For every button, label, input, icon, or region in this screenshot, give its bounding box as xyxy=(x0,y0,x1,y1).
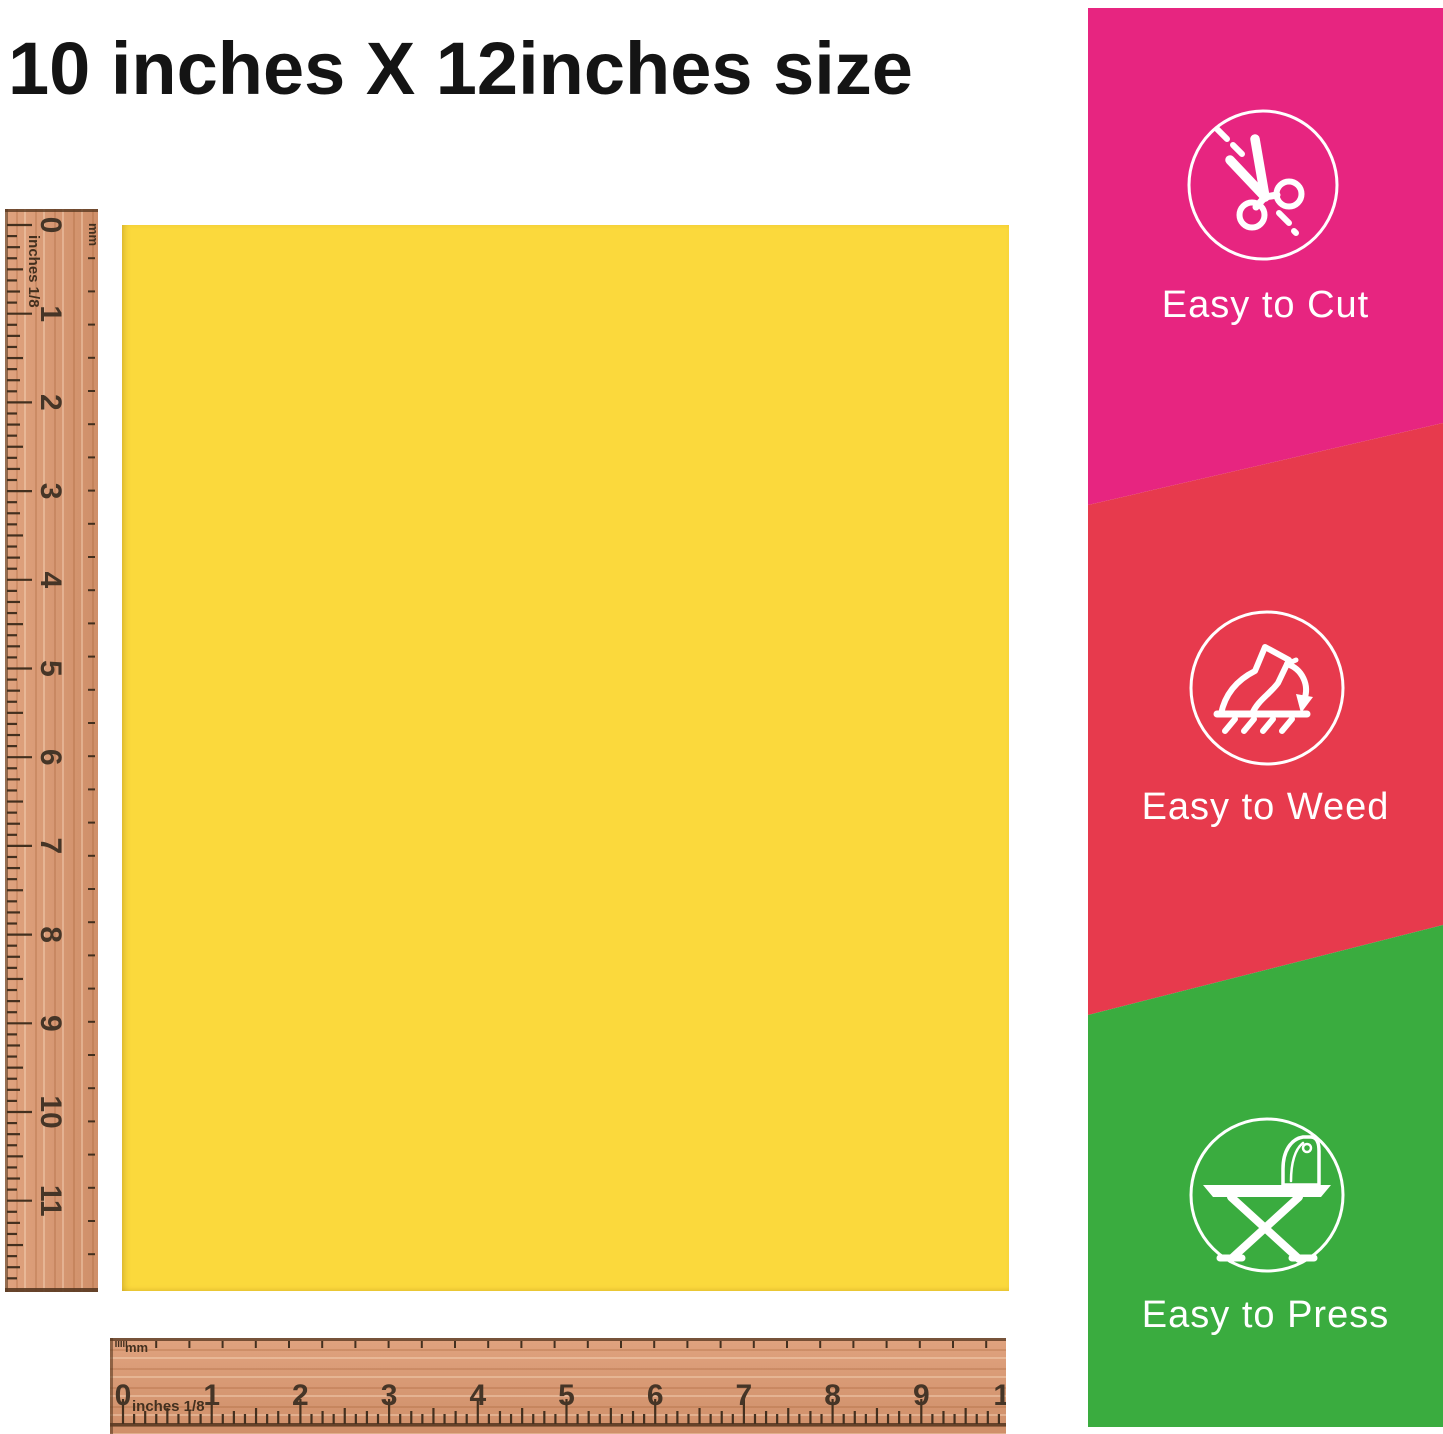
vertical-ruler: mm01234567891011inches 1/8 xyxy=(5,209,98,1292)
svg-text:11: 11 xyxy=(34,1185,67,1217)
press-label: Easy to Press xyxy=(1088,1294,1443,1337)
svg-text:7: 7 xyxy=(736,1379,753,1412)
svg-text:1: 1 xyxy=(203,1379,220,1412)
weed-section-band xyxy=(1088,423,1443,1015)
svg-text:10: 10 xyxy=(993,1379,1006,1412)
svg-text:inches 1/8: inches 1/8 xyxy=(25,235,42,308)
svg-text:mm: mm xyxy=(125,1340,148,1355)
svg-text:8: 8 xyxy=(824,1379,841,1412)
svg-text:mm: mm xyxy=(86,223,98,246)
cut-section-band xyxy=(1088,8,1443,505)
weed-label: Easy to Weed xyxy=(1088,786,1443,829)
svg-text:10: 10 xyxy=(34,1095,67,1128)
svg-text:7: 7 xyxy=(34,838,67,855)
cut-label: Easy to Cut xyxy=(1088,284,1443,327)
svg-text:2: 2 xyxy=(34,394,67,411)
svg-text:2: 2 xyxy=(292,1379,309,1412)
svg-text:4: 4 xyxy=(469,1379,486,1412)
svg-text:5: 5 xyxy=(558,1379,575,1412)
svg-text:0: 0 xyxy=(34,217,67,234)
svg-text:8: 8 xyxy=(34,926,67,943)
vertical-ruler-scale: mm01234567891011inches 1/8 xyxy=(5,209,98,1292)
svg-text:3: 3 xyxy=(381,1379,398,1412)
feature-sidebar xyxy=(1088,8,1443,1427)
horizontal-ruler: mm012345678910inches 1/8 xyxy=(110,1338,1006,1434)
svg-text:6: 6 xyxy=(647,1379,664,1412)
svg-text:5: 5 xyxy=(34,660,67,677)
horizontal-ruler-scale: mm012345678910inches 1/8 xyxy=(110,1338,1006,1434)
product-image: 10 inches X 12inches size mm012345678910… xyxy=(0,0,1443,1434)
svg-text:4: 4 xyxy=(34,571,67,588)
svg-text:1: 1 xyxy=(34,305,67,322)
svg-text:6: 6 xyxy=(34,749,67,766)
vinyl-sheet xyxy=(122,225,1009,1291)
svg-text:9: 9 xyxy=(913,1379,930,1412)
svg-text:inches 1/8: inches 1/8 xyxy=(132,1398,205,1415)
size-title: 10 inches X 12inches size xyxy=(8,26,913,111)
svg-text:3: 3 xyxy=(34,483,67,500)
svg-text:9: 9 xyxy=(34,1015,67,1032)
svg-text:0: 0 xyxy=(115,1379,132,1412)
